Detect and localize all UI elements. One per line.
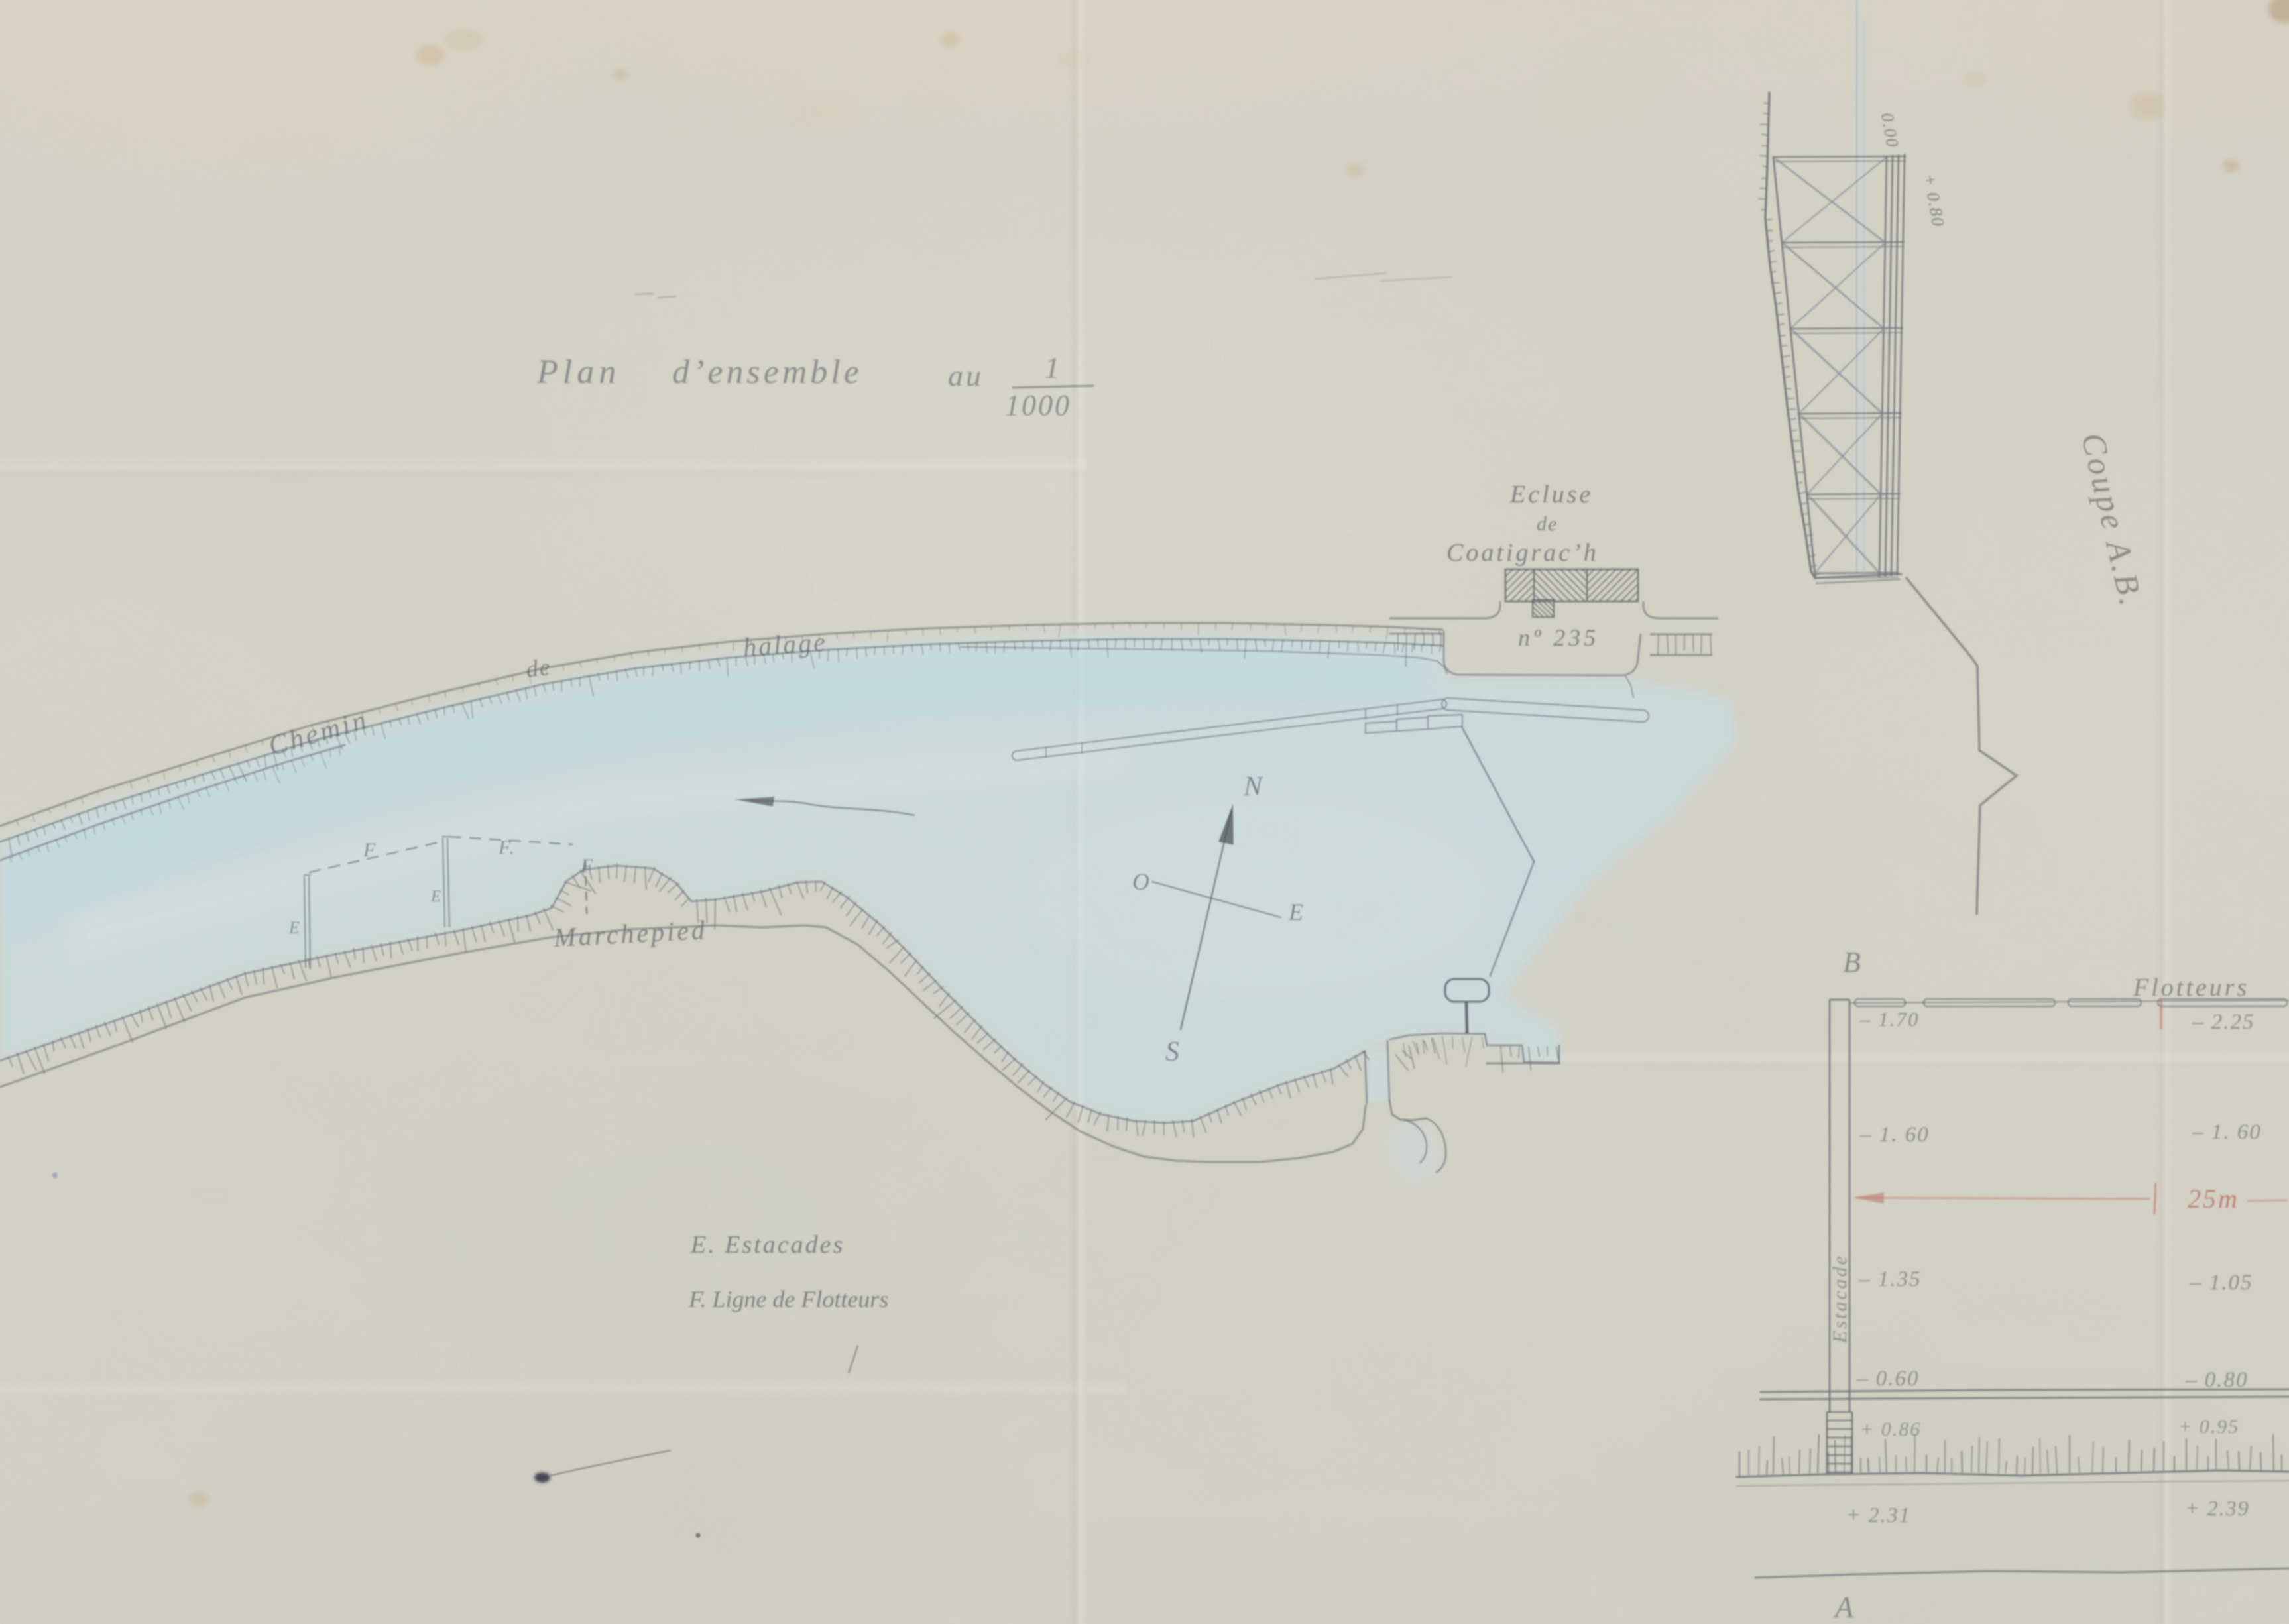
- svg-text:E. Estacades: E. Estacades: [690, 1231, 845, 1259]
- svg-text:– 1.70: – 1.70: [1859, 1008, 1920, 1031]
- svg-text:F. Ligne de Flotteurs: F. Ligne de Flotteurs: [688, 1286, 888, 1312]
- svg-text:25m: 25m: [2188, 1184, 2239, 1214]
- svg-text:B: B: [1843, 946, 1862, 978]
- svg-text:Ecluse: Ecluse: [1509, 481, 1593, 508]
- svg-text:F.: F.: [498, 837, 516, 858]
- svg-text:+ 2.31: + 2.31: [1846, 1503, 1911, 1527]
- svg-text:– 0.60: – 0.60: [1856, 1367, 1920, 1391]
- svg-text:N: N: [1243, 772, 1263, 802]
- svg-text:1: 1: [1045, 351, 1061, 384]
- svg-text:d’ensemble: d’ensemble: [672, 353, 862, 391]
- svg-text:E: E: [1288, 899, 1305, 925]
- svg-text:de: de: [1537, 513, 1558, 535]
- svg-text:+ 0.86: + 0.86: [1860, 1419, 1921, 1440]
- svg-text:Plan: Plan: [536, 353, 620, 391]
- svg-text:F: F: [363, 839, 377, 861]
- svg-text:+ 0.95: + 0.95: [2178, 1416, 2239, 1438]
- svg-text:O: O: [1132, 868, 1151, 895]
- svg-text:Coatigrac’h: Coatigrac’h: [1446, 539, 1599, 567]
- svg-text:– 1.05: – 1.05: [2190, 1271, 2253, 1295]
- svg-text:E: E: [430, 888, 442, 905]
- svg-text:Estacade: Estacade: [1829, 1254, 1851, 1344]
- svg-text:F: F: [580, 855, 594, 877]
- svg-text:Flotteurs: Flotteurs: [2133, 974, 2249, 1002]
- svg-text:– 0.80: – 0.80: [2185, 1368, 2249, 1392]
- svg-text:– 2.25: – 2.25: [2192, 1010, 2255, 1034]
- svg-text:– 1.35: – 1.35: [1858, 1267, 1922, 1291]
- svg-text:S: S: [1165, 1037, 1181, 1067]
- svg-text:– 1. 60: – 1. 60: [2192, 1120, 2262, 1144]
- svg-text:– 1. 60: – 1. 60: [1859, 1123, 1930, 1147]
- svg-text:E: E: [288, 918, 301, 937]
- svg-text:au: au: [948, 359, 984, 392]
- svg-text:+ 2.39: + 2.39: [2185, 1496, 2250, 1520]
- svg-text:1000: 1000: [1005, 389, 1071, 422]
- svg-text:halage: halage: [742, 626, 828, 662]
- svg-text:A: A: [1833, 1590, 1855, 1624]
- svg-text:nº 235: nº 235: [1518, 624, 1599, 651]
- svg-text:de: de: [524, 654, 553, 683]
